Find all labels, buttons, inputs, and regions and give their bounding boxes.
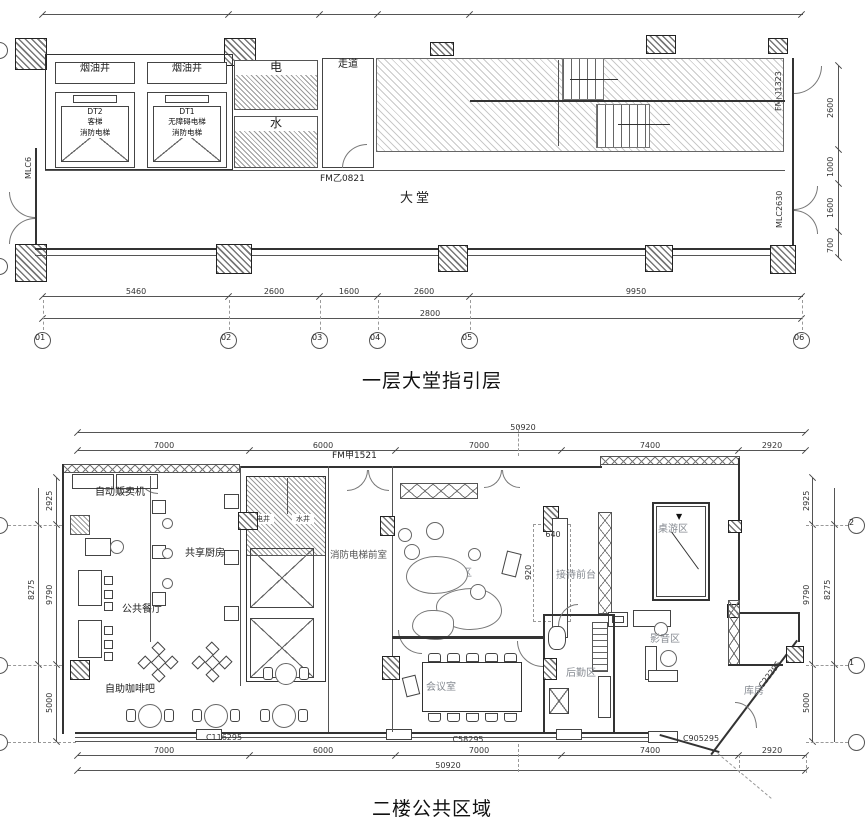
storefront-line — [75, 741, 663, 742]
column — [770, 245, 796, 274]
dim-label: 640 — [542, 530, 564, 539]
toilet — [548, 626, 566, 650]
dim-label-total: 8275 — [27, 575, 38, 605]
chair — [660, 650, 677, 667]
grid-leader — [229, 300, 230, 330]
cafe-table — [138, 704, 162, 728]
room-water-shaft: 水 — [234, 116, 318, 168]
grid-leader — [8, 665, 62, 666]
chair — [504, 713, 517, 722]
furniture — [70, 515, 90, 535]
wall-segment — [392, 636, 545, 639]
room-label-fire-lobby: 消防电梯前室 — [330, 551, 387, 562]
chair — [205, 641, 219, 655]
room-label: 水 — [235, 117, 317, 131]
room-label-logistics: 后勤区 — [566, 668, 596, 680]
room-label-coffee: 自助咖啡吧 — [105, 684, 155, 696]
door-arc — [794, 210, 818, 234]
dim-label: 920 — [524, 560, 534, 584]
chair — [104, 626, 113, 635]
door-arc — [368, 470, 389, 491]
storefront-band — [62, 464, 240, 473]
mullion — [386, 729, 412, 740]
chair — [447, 713, 460, 722]
chair — [151, 641, 165, 655]
chair — [402, 675, 420, 698]
dimension-line — [78, 450, 806, 451]
grid-bubble — [848, 734, 865, 751]
dim-label: 2925 — [45, 488, 56, 514]
dim-label: 9790 — [45, 582, 56, 608]
chair — [104, 602, 113, 611]
dim-label: 7000 — [144, 441, 184, 450]
column — [430, 42, 454, 56]
dimension-line — [834, 488, 835, 742]
kitchen-appliance — [224, 606, 239, 621]
column — [216, 244, 252, 274]
dim-label: 1600 — [826, 194, 837, 222]
elevator-label: DT1 — [154, 107, 220, 116]
table — [78, 620, 102, 658]
room-smoke-shaft: 烟油井 — [55, 62, 135, 84]
wall-segment — [240, 466, 241, 686]
dim-label: 5000 — [802, 690, 813, 716]
grid-bubble: 1 — [0, 657, 8, 674]
wall-segment — [35, 255, 793, 256]
wall-segment — [543, 614, 615, 616]
dimension-line — [78, 770, 806, 771]
table — [78, 570, 102, 606]
dim-label: 6000 — [303, 746, 343, 755]
stair-rail — [558, 60, 559, 146]
side-table — [501, 551, 521, 578]
grid-label: 2 — [849, 518, 864, 527]
grid-label: 03 — [312, 333, 327, 342]
floor1-title: 一层大堂指引层 — [282, 366, 582, 393]
dim-label: 1000 — [826, 153, 837, 181]
door-arc — [794, 186, 818, 210]
column — [438, 245, 468, 272]
cabinet — [598, 676, 611, 718]
column — [768, 38, 788, 54]
dim-label: 700 — [826, 231, 837, 259]
wall-segment — [728, 664, 783, 666]
dim-label-total: 50920 — [420, 761, 476, 770]
dim-label: 7000 — [459, 746, 499, 755]
elevator-label: 消防电梯 — [62, 127, 128, 138]
door-code: MLC2630 — [775, 184, 787, 234]
door-arc — [9, 218, 35, 244]
axis-line — [518, 424, 519, 456]
wall-segment — [392, 466, 393, 732]
room-label-kitchen: 共享厨房 — [185, 548, 225, 560]
grid-bubble: 03 — [311, 332, 328, 349]
kitchen-appliance — [152, 500, 166, 514]
pouf — [470, 584, 486, 600]
dim-label: 7400 — [630, 441, 670, 450]
grid-leader — [802, 300, 803, 330]
elevator-label: DT2 — [62, 107, 128, 116]
dim-label: 9790 — [802, 582, 813, 608]
grid-leader — [806, 665, 848, 666]
elevator-dt1: DT1 无障碍电梯 消防电梯 — [153, 106, 221, 162]
dim-label: 2600 — [404, 287, 444, 296]
room-label-storage: 库房 — [744, 686, 764, 698]
chair — [260, 709, 270, 722]
door-code: FM乙1323 — [773, 68, 785, 114]
stair-direction-arrow — [618, 124, 670, 125]
wall-segment — [738, 612, 800, 614]
column — [70, 660, 90, 680]
chair — [126, 709, 136, 722]
floor2-title: 二楼公共区域 — [287, 794, 577, 821]
chair — [428, 713, 441, 722]
av-desk — [648, 670, 678, 682]
grid-leader — [470, 300, 471, 330]
dim-label: 2925 — [802, 488, 813, 514]
dimension-line — [78, 755, 806, 756]
room-smoke-shaft: 烟油井 — [147, 62, 227, 84]
chair — [485, 653, 498, 662]
room-label-vending: 自动贩卖机 — [95, 487, 145, 499]
wall-segment — [62, 464, 64, 734]
elevator-dt2: DT2 客梯 消防电梯 — [61, 106, 129, 162]
grid-bubble: 04 — [369, 332, 386, 349]
dimension-line — [43, 296, 803, 297]
grid-leader — [717, 753, 771, 799]
grid-bubble: 05 — [461, 332, 478, 349]
chair — [504, 653, 517, 662]
stool — [162, 518, 173, 529]
column — [15, 38, 47, 70]
window-code: C116295 — [202, 733, 246, 742]
stair-flight — [596, 104, 650, 148]
dim-label: 2920 — [750, 441, 794, 450]
door-code: FM乙0821 — [320, 174, 365, 184]
dimension-line — [38, 488, 39, 742]
chair — [104, 590, 113, 599]
storage-box — [549, 688, 569, 714]
cafe-table — [275, 663, 297, 685]
chair — [104, 576, 113, 585]
dim-label-total: 2800 — [405, 309, 455, 318]
room-label-meeting: 会议室 — [426, 682, 456, 694]
elevator-lintel — [165, 95, 209, 103]
column — [380, 516, 395, 536]
lounge-chair — [398, 630, 422, 654]
core-outline — [246, 476, 326, 682]
room-label-reception-desk: 接待前台 — [556, 570, 596, 582]
elevator-label: 客梯 — [62, 116, 128, 127]
dimension-line — [838, 66, 839, 258]
room-label: 电 — [235, 61, 317, 75]
stair-landing-line — [470, 100, 785, 102]
window-code: C905295 — [678, 734, 724, 743]
grid-bubble: 02 — [220, 332, 237, 349]
door-arc — [484, 470, 502, 488]
wall-segment — [240, 466, 602, 468]
wall-segment — [613, 614, 615, 734]
grid-leader — [806, 742, 848, 743]
wall-segment — [150, 476, 151, 642]
door-arc — [794, 66, 822, 94]
grid-leader — [806, 755, 807, 773]
dim-label: 7400 — [630, 746, 670, 755]
chair — [466, 653, 479, 662]
grid-label: 1 — [0, 658, 7, 667]
elevator-label: 无障碍电梯 — [154, 116, 220, 127]
grid-leader — [518, 744, 519, 772]
stair-direction-arrow — [570, 79, 618, 80]
dimension-line — [43, 14, 803, 15]
grid-bubble: 01 — [34, 332, 51, 349]
room-label: 走道 — [323, 59, 373, 71]
room-electrical-shaft: 电 — [234, 60, 318, 110]
grid-label: 01 — [35, 333, 50, 342]
room-label: 烟油井 — [148, 63, 226, 75]
dimension-line — [78, 432, 806, 433]
grid-label: 06 — [794, 333, 809, 342]
cafe-table — [272, 704, 296, 728]
dim-label-total: 50920 — [495, 423, 551, 432]
chair — [192, 709, 202, 722]
chair — [164, 709, 174, 722]
grid-leader — [43, 300, 44, 330]
triangle-marker: ▼ — [676, 512, 682, 521]
dimension-line — [56, 478, 57, 742]
column — [646, 35, 676, 54]
floor-plan-sheet: 烟油井 烟油井 DT2 客梯 消防电梯 DT1 无障碍电梯 消防电梯 电 水 走… — [0, 0, 865, 832]
dim-label: 1600 — [329, 287, 369, 296]
pouf — [468, 548, 481, 561]
door-arc — [347, 470, 368, 491]
window-strip — [728, 600, 740, 666]
chair — [428, 653, 441, 662]
chair — [137, 655, 151, 669]
storefront-band — [600, 456, 740, 465]
elevator-lintel — [73, 95, 117, 103]
column — [645, 245, 673, 272]
grid-bubble: 2 — [848, 517, 865, 534]
room-label: 烟油井 — [56, 63, 134, 75]
column — [543, 658, 557, 680]
column — [728, 520, 742, 533]
grid-leader — [320, 300, 321, 330]
grid-bubble — [0, 42, 8, 59]
grid-leader — [8, 742, 76, 743]
chair — [485, 713, 498, 722]
grid-label: 1 — [849, 658, 864, 667]
chair — [104, 640, 113, 649]
wall-segment — [328, 466, 329, 732]
chair — [191, 655, 205, 669]
wall-segment — [35, 248, 793, 250]
door-arc — [735, 702, 757, 728]
kitchen-appliance — [152, 592, 166, 606]
chair — [164, 655, 178, 669]
chair — [218, 655, 232, 669]
chair — [230, 709, 240, 722]
door-arc — [502, 470, 520, 488]
grid-leader — [806, 525, 848, 526]
grid-label: 05 — [462, 333, 477, 342]
grid-bubble: 06 — [793, 332, 810, 349]
door-arc — [9, 192, 35, 218]
dim-label: 6000 — [303, 441, 343, 450]
chair — [263, 667, 273, 680]
chair — [299, 667, 309, 680]
grid-label: 02 — [221, 333, 236, 342]
ladder — [592, 622, 608, 672]
chair — [447, 653, 460, 662]
chair — [104, 652, 113, 661]
dim-label: 7000 — [459, 441, 499, 450]
partition-screen — [400, 483, 478, 499]
room-label-av: 影音区 — [650, 634, 680, 646]
chair — [298, 709, 308, 722]
partition-screen — [598, 512, 612, 614]
mullion — [556, 729, 582, 740]
stool — [162, 548, 173, 559]
chair — [466, 713, 479, 722]
furniture-desk — [85, 538, 111, 556]
cafe-table — [204, 704, 228, 728]
wall-segment — [45, 170, 785, 171]
dimension-line — [43, 318, 803, 319]
dim-label: 5460 — [116, 287, 156, 296]
grid-bubble: 1 — [848, 657, 865, 674]
dim-label: 2600 — [254, 287, 294, 296]
pouf — [398, 528, 412, 542]
grid-label: 2 — [0, 518, 7, 527]
kitchen-appliance — [224, 550, 239, 565]
grid-bubble — [0, 734, 8, 751]
dim-label: 2600 — [826, 94, 837, 122]
wall-segment — [798, 612, 800, 642]
grid-bubble — [0, 258, 8, 275]
room-label-lobby: 大堂 — [400, 192, 432, 207]
column — [382, 656, 400, 680]
column — [786, 646, 804, 663]
grid-leader — [378, 300, 379, 330]
window-code: C58295 — [448, 735, 488, 744]
door-code: FM甲1521 — [332, 451, 377, 461]
pouf — [404, 544, 420, 560]
pouf — [426, 522, 444, 540]
dim-label: 9950 — [616, 287, 656, 296]
wall-segment — [35, 148, 37, 248]
stool — [162, 578, 173, 589]
chair — [205, 668, 219, 682]
grid-label: 04 — [370, 333, 385, 342]
dim-label: 7000 — [144, 746, 184, 755]
column — [238, 512, 258, 530]
dim-label: 5000 — [45, 690, 56, 716]
chair — [151, 668, 165, 682]
dim-label-total: 8275 — [823, 575, 834, 605]
elevator-label: 消防电梯 — [154, 127, 220, 138]
furniture-chair — [110, 540, 124, 554]
dim-label: 2920 — [750, 746, 794, 755]
grid-bubble: 2 — [0, 517, 8, 534]
wall-segment — [738, 458, 740, 614]
grid-leader — [8, 525, 62, 526]
kitchen-appliance — [224, 494, 239, 509]
